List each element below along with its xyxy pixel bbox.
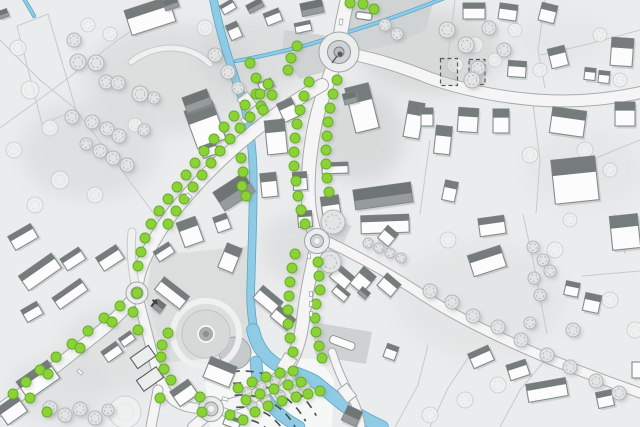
gray-tree xyxy=(534,289,546,301)
green-tree xyxy=(128,307,138,317)
gray-tree xyxy=(112,129,126,143)
green-tree xyxy=(284,291,294,301)
green-tree xyxy=(171,206,181,216)
gray-tree xyxy=(85,115,99,129)
green-tree xyxy=(166,375,176,385)
green-tree xyxy=(261,372,271,382)
green-tree xyxy=(263,79,273,89)
gray-tree xyxy=(445,295,459,309)
green-tree xyxy=(314,271,324,281)
plaza-center-dot xyxy=(203,331,209,337)
gray-tree xyxy=(423,284,437,298)
green-tree xyxy=(146,219,156,229)
gray-tree xyxy=(379,19,391,31)
building xyxy=(433,125,454,157)
gray-tree xyxy=(80,138,92,150)
faint-tree xyxy=(51,171,69,189)
green-tree xyxy=(197,170,207,180)
building xyxy=(584,67,598,83)
gray-tree xyxy=(321,210,345,234)
green-tree xyxy=(251,73,261,83)
green-tree xyxy=(255,89,265,99)
faint-tree xyxy=(593,28,607,42)
faint-tree xyxy=(197,20,213,36)
green-tree xyxy=(206,158,216,168)
green-tree xyxy=(291,176,301,186)
green-tree xyxy=(328,89,338,99)
green-tree xyxy=(155,393,165,403)
green-tree xyxy=(157,340,167,350)
green-tree xyxy=(289,161,299,171)
gray-tree xyxy=(374,243,384,253)
gray-tree xyxy=(544,265,556,277)
green-tree xyxy=(258,105,268,115)
green-tree xyxy=(295,105,305,115)
green-tree xyxy=(321,145,331,155)
building-roof xyxy=(463,3,485,9)
gray-tree xyxy=(208,48,222,62)
green-tree xyxy=(283,319,293,329)
faint-tree xyxy=(422,407,438,423)
green-tree xyxy=(133,261,143,271)
gray-tree xyxy=(93,144,107,158)
gray-tree xyxy=(497,43,511,57)
faint-tree xyxy=(21,81,39,99)
green-tree xyxy=(219,122,229,132)
gray-tree xyxy=(120,158,134,172)
faint-tree xyxy=(42,120,58,136)
green-tree xyxy=(299,91,309,101)
gray-tree xyxy=(111,76,125,90)
green-tree xyxy=(321,159,331,169)
faint-tree xyxy=(6,142,22,158)
building-roof xyxy=(611,37,634,49)
green-tree xyxy=(255,389,265,399)
green-tree xyxy=(42,407,52,417)
green-tree xyxy=(311,327,321,337)
green-tree xyxy=(156,352,166,362)
green-tree xyxy=(247,377,257,387)
gray-tree xyxy=(88,55,104,71)
faint-tree xyxy=(81,18,95,32)
building xyxy=(457,107,481,135)
roundabout-tree xyxy=(132,288,142,298)
green-tree xyxy=(240,100,250,110)
gray-tree xyxy=(439,22,455,38)
building xyxy=(260,172,281,200)
green-tree xyxy=(287,263,297,273)
gray-tree xyxy=(458,37,474,53)
green-tree xyxy=(215,146,225,156)
building xyxy=(507,60,528,80)
gray-tree xyxy=(67,33,81,47)
building xyxy=(421,108,435,129)
gray-tree xyxy=(528,272,540,284)
green-tree xyxy=(163,328,173,338)
site-plan-map xyxy=(0,0,640,427)
green-tree xyxy=(238,167,248,177)
green-tree xyxy=(283,305,293,315)
road-marking xyxy=(309,301,312,306)
green-tree xyxy=(369,4,379,14)
building xyxy=(463,3,487,22)
gray-tree xyxy=(58,408,72,422)
green-tree xyxy=(358,0,368,9)
green-tree xyxy=(291,392,301,402)
gray-tree xyxy=(527,241,539,253)
gray-tree xyxy=(482,21,496,35)
green-tree xyxy=(188,182,198,192)
green-tree xyxy=(140,233,150,243)
green-tree xyxy=(245,58,255,68)
green-tree xyxy=(285,277,295,287)
gray-tree xyxy=(65,110,79,124)
gray-tree xyxy=(132,86,148,102)
faint-tree xyxy=(563,213,577,227)
green-tree xyxy=(322,173,332,183)
gray-tree xyxy=(70,54,86,70)
building xyxy=(563,281,582,300)
green-tree xyxy=(345,0,355,8)
faint-tree xyxy=(27,197,43,213)
green-tree xyxy=(263,401,273,411)
gray-tree xyxy=(466,309,480,323)
green-tree xyxy=(313,257,323,267)
green-tree xyxy=(238,415,248,425)
green-tree xyxy=(314,341,324,351)
gray-tree xyxy=(563,360,577,374)
faint-tree xyxy=(457,392,473,408)
green-tree xyxy=(285,333,295,343)
green-tree xyxy=(292,41,302,51)
green-tree xyxy=(172,182,182,192)
green-tree xyxy=(241,191,251,201)
green-tree xyxy=(43,369,53,379)
road-marking xyxy=(307,253,310,258)
gray-tree xyxy=(391,28,403,40)
gray-tree xyxy=(221,65,235,79)
green-tree xyxy=(136,247,146,257)
gray-tree xyxy=(464,72,480,88)
gray-tree xyxy=(106,151,120,165)
green-tree xyxy=(303,389,313,399)
green-tree xyxy=(283,380,293,390)
green-tree xyxy=(154,206,164,216)
green-tree xyxy=(300,219,310,229)
building xyxy=(478,215,509,239)
building-roof xyxy=(435,125,452,137)
gray-tree xyxy=(138,124,150,136)
green-tree xyxy=(267,90,277,100)
green-tree xyxy=(296,377,306,387)
green-tree xyxy=(315,386,325,396)
green-tree xyxy=(163,219,173,229)
gray-tree xyxy=(88,411,102,425)
green-tree xyxy=(236,153,246,163)
green-tree xyxy=(21,377,31,387)
building-roof xyxy=(615,102,635,111)
green-tree xyxy=(315,285,325,295)
green-tree xyxy=(8,389,18,399)
faint-tree xyxy=(547,242,563,258)
building xyxy=(493,109,511,136)
building xyxy=(598,70,612,86)
green-tree xyxy=(25,393,35,403)
building-footprint xyxy=(632,362,640,378)
green-tree xyxy=(286,53,296,63)
green-tree xyxy=(277,396,287,406)
green-tree xyxy=(133,325,143,335)
gray-tree xyxy=(73,402,87,416)
green-tree xyxy=(304,77,314,87)
gray-tree xyxy=(514,333,528,347)
faint-tree xyxy=(440,232,456,248)
green-tree xyxy=(237,181,247,191)
green-tree xyxy=(322,131,332,141)
gray-tree xyxy=(102,404,114,416)
green-tree xyxy=(292,119,302,129)
road-marking xyxy=(339,19,343,25)
gray-tree xyxy=(540,348,554,362)
green-tree xyxy=(233,383,243,393)
roundabout-feature-dot xyxy=(338,52,343,57)
green-tree xyxy=(209,134,219,144)
green-tree xyxy=(197,407,207,417)
green-tree xyxy=(290,133,300,143)
green-tree xyxy=(275,368,285,378)
building-roof xyxy=(264,119,285,133)
building xyxy=(615,102,637,129)
green-tree xyxy=(163,194,173,204)
green-tree xyxy=(235,123,245,133)
building xyxy=(609,213,640,252)
gray-tree xyxy=(232,82,244,94)
green-tree xyxy=(324,187,334,197)
faint-tree xyxy=(613,73,627,87)
building xyxy=(498,3,520,24)
green-tree xyxy=(293,191,303,201)
faint-tree xyxy=(508,23,522,37)
faint-tree xyxy=(603,163,617,177)
building xyxy=(551,156,602,207)
building-roof xyxy=(260,172,277,182)
green-tree xyxy=(159,364,169,374)
faint-tree xyxy=(627,322,640,338)
green-tree xyxy=(225,410,235,420)
faint-tree xyxy=(10,40,26,56)
road-marking xyxy=(309,311,312,316)
green-tree xyxy=(115,301,125,311)
bus-icon xyxy=(356,11,373,20)
gray-tree xyxy=(363,238,373,248)
green-tree xyxy=(51,352,61,362)
green-tree xyxy=(269,384,279,394)
building-roof xyxy=(421,108,433,114)
roundabout-center xyxy=(208,406,214,412)
gray-tree xyxy=(385,248,395,258)
green-tree xyxy=(190,158,200,168)
green-tree xyxy=(296,205,306,215)
green-tree xyxy=(325,103,335,113)
green-tree xyxy=(289,147,299,157)
green-tree xyxy=(225,134,235,144)
gray-tree xyxy=(396,253,406,263)
building xyxy=(549,107,589,140)
faint-tree xyxy=(103,27,117,41)
building xyxy=(632,362,640,381)
green-tree xyxy=(195,392,205,402)
green-tree xyxy=(317,353,327,363)
green-tree xyxy=(323,117,333,127)
faint-tree xyxy=(522,147,538,163)
green-tree xyxy=(290,249,300,259)
green-tree xyxy=(181,170,191,180)
faint-tree xyxy=(490,377,506,393)
green-tree xyxy=(241,395,251,405)
building xyxy=(610,37,636,69)
green-tree xyxy=(199,146,209,156)
green-tree xyxy=(332,75,342,85)
gray-tree xyxy=(491,320,505,334)
green-tree xyxy=(245,112,255,122)
green-tree xyxy=(229,111,239,121)
building-roof xyxy=(458,107,479,117)
green-tree xyxy=(288,366,298,376)
green-tree xyxy=(283,65,293,75)
planned-building xyxy=(441,59,458,86)
faint-tree xyxy=(602,292,618,308)
building xyxy=(264,119,290,158)
faint-tree xyxy=(533,63,547,77)
faint-tree xyxy=(577,142,593,158)
roundabout-center xyxy=(315,239,320,244)
faint-tree xyxy=(87,187,103,203)
gray-tree xyxy=(612,386,626,400)
green-tree xyxy=(250,407,260,417)
green-tree xyxy=(288,347,298,357)
gray-tree xyxy=(148,92,160,104)
green-tree xyxy=(83,326,93,336)
building-roof xyxy=(493,109,509,118)
gray-tree xyxy=(566,323,580,337)
gray-tree xyxy=(537,254,549,266)
gray-tree xyxy=(589,374,603,388)
site-plan-svg xyxy=(0,0,640,427)
green-tree xyxy=(75,343,85,353)
green-tree xyxy=(107,317,117,327)
road-marking xyxy=(309,291,312,296)
gray-tree xyxy=(524,317,536,329)
